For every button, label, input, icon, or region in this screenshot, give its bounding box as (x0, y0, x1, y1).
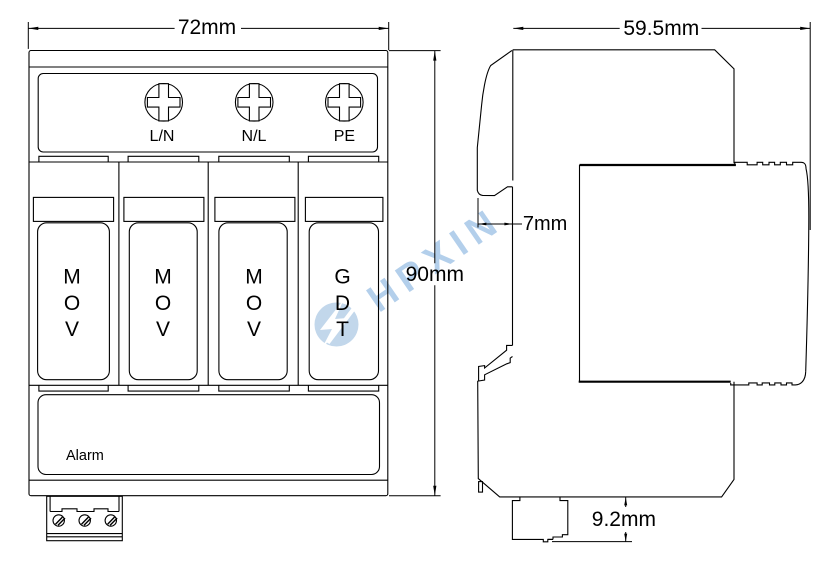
svg-text:V: V (65, 318, 79, 341)
svg-text:O: O (246, 292, 262, 315)
svg-text:M: M (154, 266, 172, 289)
svg-text:O: O (155, 292, 171, 315)
svg-text:M: M (63, 266, 81, 289)
svg-text:7mm: 7mm (523, 213, 567, 235)
svg-text:59.5mm: 59.5mm (623, 17, 699, 40)
svg-text:M: M (245, 266, 263, 289)
svg-text:PE: PE (334, 128, 355, 145)
svg-text:D: D (335, 292, 350, 315)
svg-text:9.2mm: 9.2mm (592, 508, 656, 531)
svg-text:90mm: 90mm (406, 263, 464, 286)
svg-text:N/L: N/L (242, 128, 267, 145)
svg-text:L/N: L/N (150, 128, 175, 145)
svg-text:Alarm: Alarm (66, 448, 104, 464)
svg-text:G: G (334, 266, 350, 289)
svg-text:72mm: 72mm (178, 16, 236, 39)
svg-text:V: V (247, 318, 261, 341)
svg-text:V: V (156, 318, 170, 341)
svg-text:T: T (336, 318, 349, 341)
svg-text:O: O (64, 292, 80, 315)
